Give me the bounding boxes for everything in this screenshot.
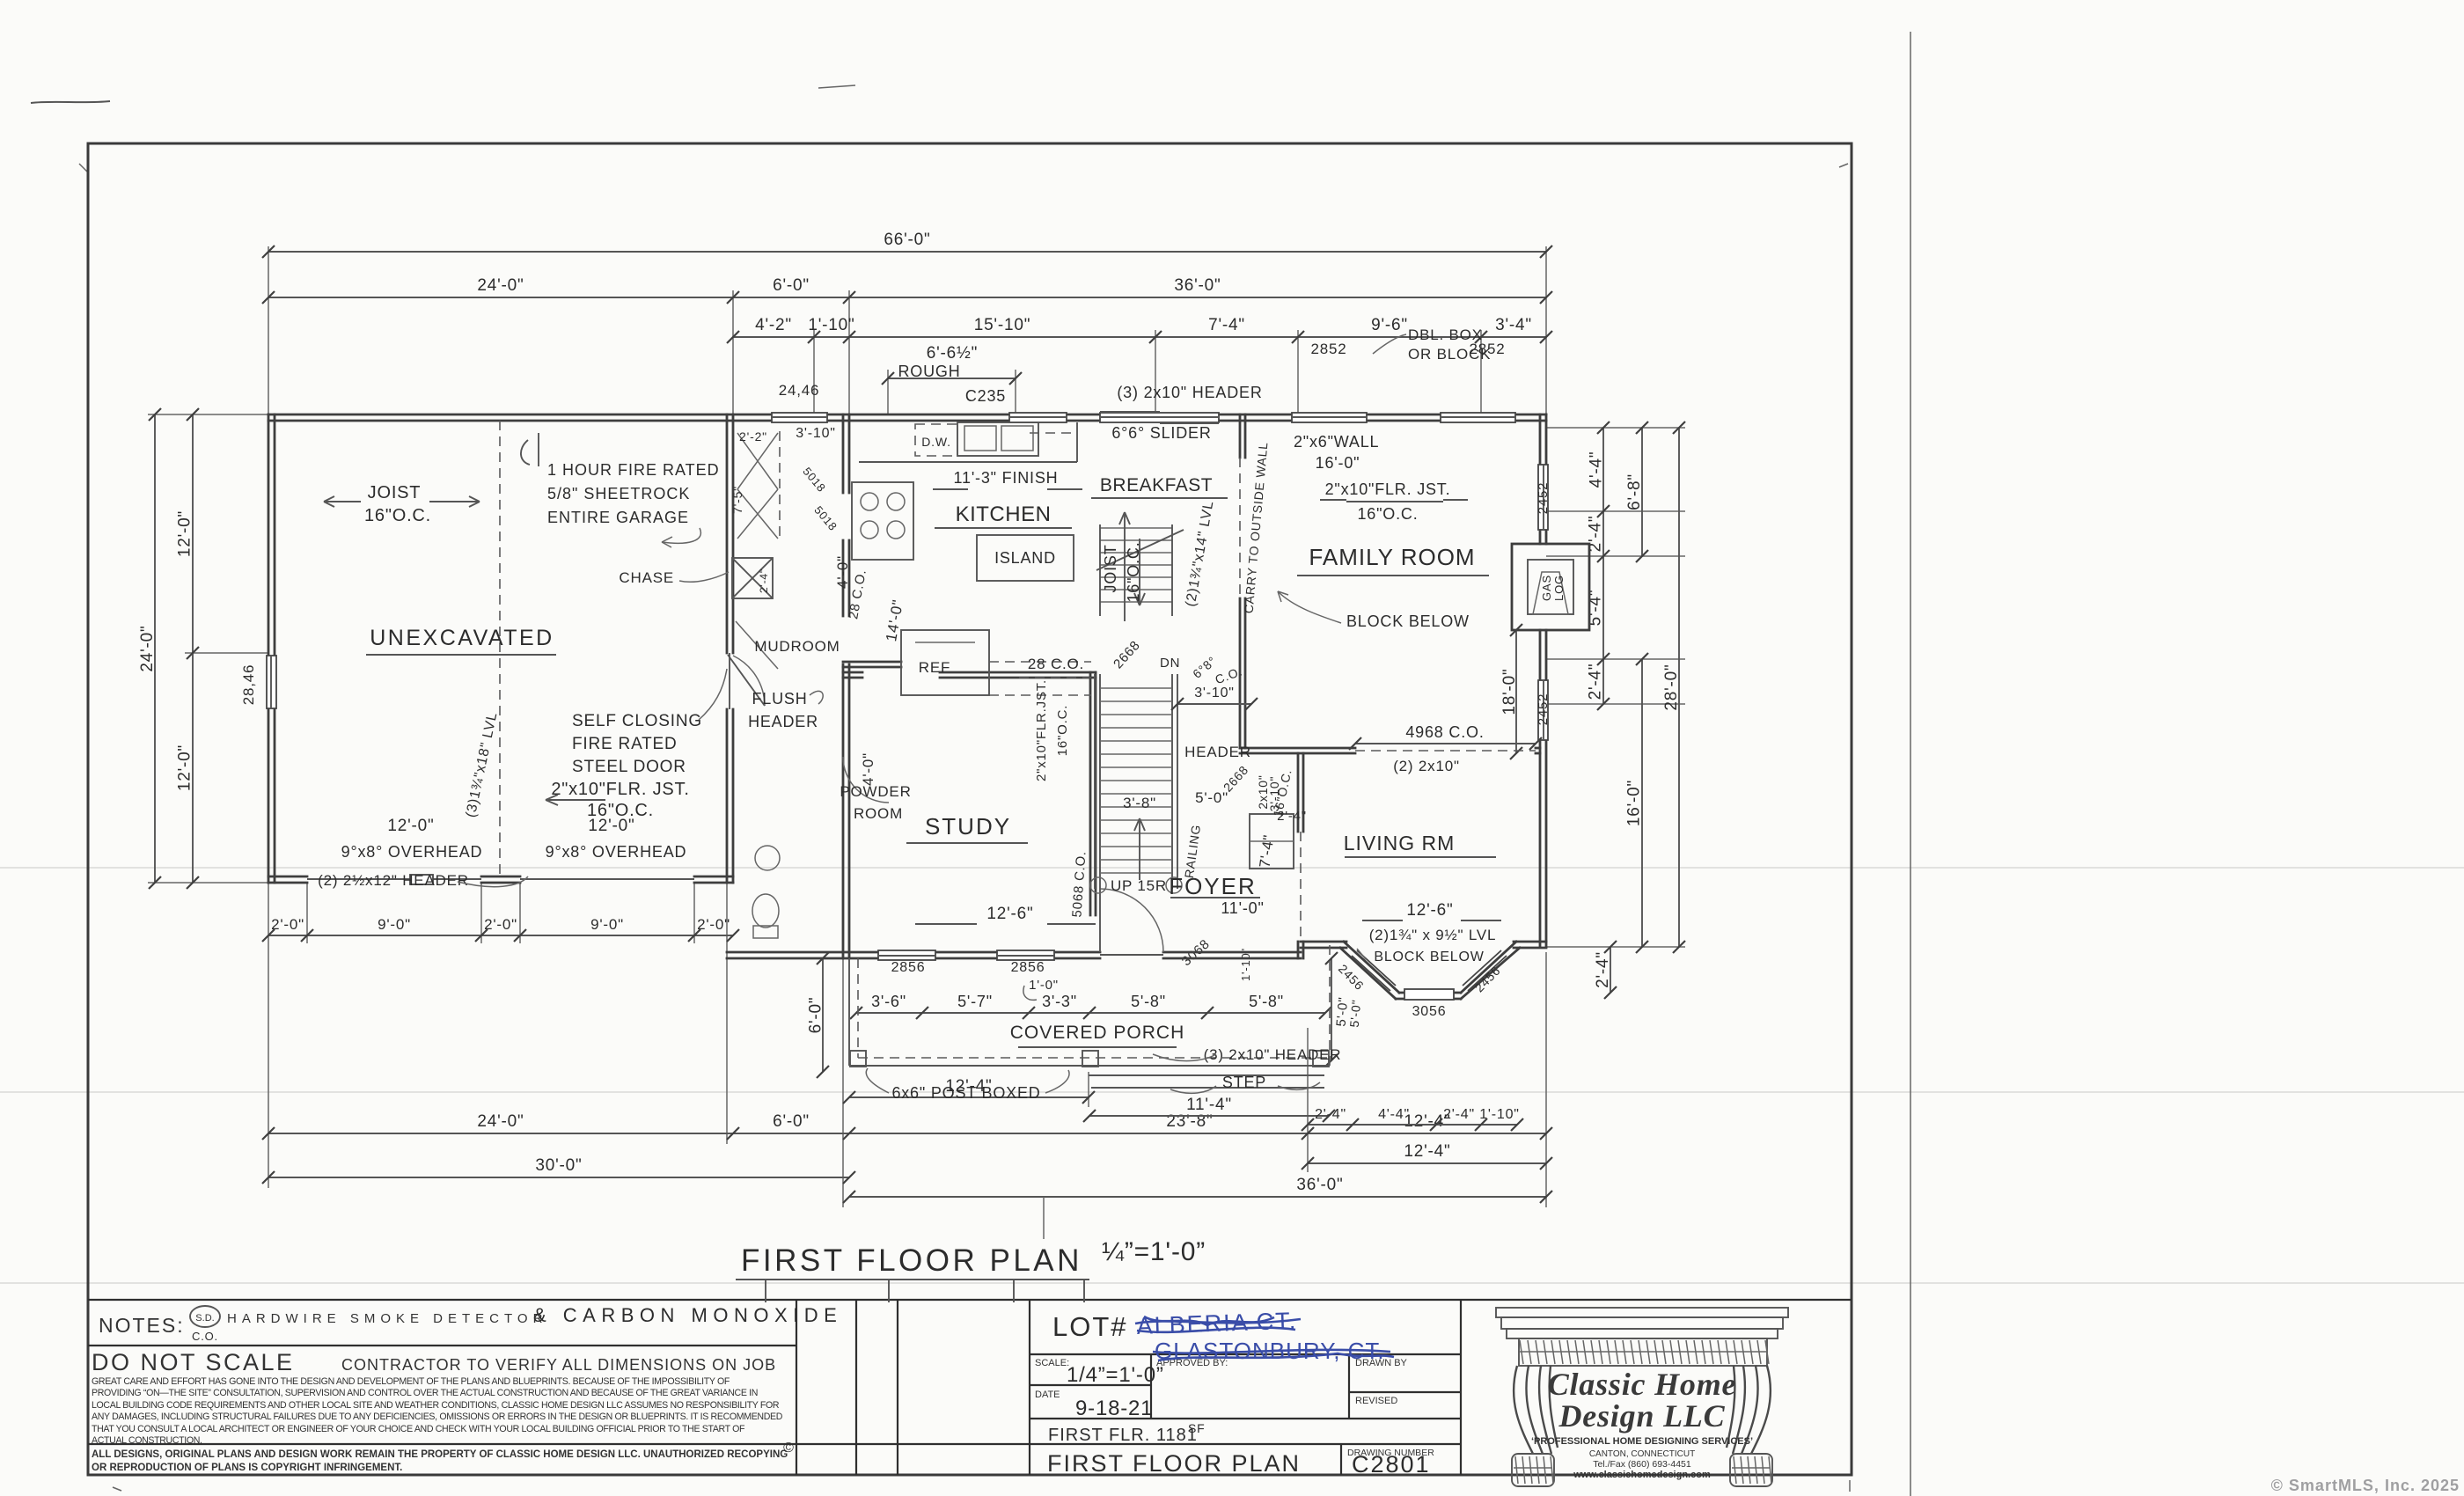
svg-text:9-18-21: 9-18-21 bbox=[1075, 1397, 1153, 1420]
svg-text:30'-0": 30'-0" bbox=[535, 1156, 582, 1175]
svg-text:3056: 3056 bbox=[1412, 1004, 1447, 1019]
svg-text:POWDER: POWDER bbox=[840, 783, 911, 800]
svg-text:REF: REF bbox=[919, 659, 950, 676]
svg-text:16"O.C.: 16"O.C. bbox=[1125, 541, 1142, 602]
svg-text:C235: C235 bbox=[965, 387, 1006, 405]
svg-text:2'-4": 2'-4" bbox=[758, 568, 770, 593]
svg-text:& CARBON MONOXIDE: & CARBON MONOXIDE bbox=[533, 1304, 842, 1326]
svg-text:(2) 2½x12" HEADER: (2) 2½x12" HEADER bbox=[318, 872, 469, 889]
svg-text:CONTRACTOR TO VERIFY ALL DIMEN: CONTRACTOR TO VERIFY ALL DIMENSIONS ON J… bbox=[341, 1356, 776, 1374]
svg-text:11'-3" FINISH: 11'-3" FINISH bbox=[954, 469, 1059, 487]
svg-text:©: © bbox=[783, 1441, 794, 1456]
svg-text:OR REPRODUCTION OF PLANS IS CO: OR REPRODUCTION OF PLANS IS COPYRIGHT IN… bbox=[92, 1463, 402, 1473]
svg-text:BLOCK BELOW: BLOCK BELOW bbox=[1346, 612, 1470, 630]
svg-text:THAT YOU CONSULT A LOCAL ARCHI: THAT YOU CONSULT A LOCAL ARCHITECT OR EN… bbox=[92, 1424, 745, 1434]
svg-text:24,46: 24,46 bbox=[779, 382, 820, 399]
svg-text:3'-10": 3'-10" bbox=[1194, 686, 1235, 700]
svg-text:JOIST: JOIST bbox=[1102, 544, 1119, 592]
svg-text:4'-2": 4'-2" bbox=[755, 316, 792, 334]
svg-text:Classic Home: Classic Home bbox=[1548, 1367, 1737, 1402]
svg-text:2"x10"FLR. JST.: 2"x10"FLR. JST. bbox=[551, 780, 689, 799]
svg-text:FAMILY ROOM: FAMILY ROOM bbox=[1309, 544, 1475, 570]
svg-text:16'-0": 16'-0" bbox=[1625, 780, 1644, 826]
svg-text:‘PROFESSIONAL HOME DESIGNING S: ‘PROFESSIONAL HOME DESIGNING SERVICES’ bbox=[1531, 1436, 1753, 1447]
svg-text:(3) 2x10" HEADER: (3) 2x10" HEADER bbox=[1117, 384, 1262, 401]
svg-text:DN: DN bbox=[1160, 656, 1180, 671]
svg-text:28'-0": 28'-0" bbox=[1662, 664, 1681, 710]
svg-text:FLUSH: FLUSH bbox=[752, 690, 807, 708]
svg-text:ISLAND: ISLAND bbox=[994, 549, 1056, 567]
svg-text:LOG: LOG bbox=[1552, 575, 1566, 601]
svg-text:D.W.: D.W. bbox=[921, 435, 951, 449]
svg-text:16"O.C.: 16"O.C. bbox=[1357, 505, 1418, 523]
svg-text:7'-4": 7'-4" bbox=[1208, 316, 1245, 334]
svg-text:C.O.: C.O. bbox=[192, 1330, 218, 1343]
svg-text:12'-0": 12'-0" bbox=[176, 744, 194, 791]
svg-text:12'-0": 12'-0" bbox=[176, 510, 194, 557]
svg-text:REVISED: REVISED bbox=[1355, 1396, 1397, 1406]
svg-text:Tel./Fax (860) 693-4451: Tel./Fax (860) 693-4451 bbox=[1593, 1459, 1691, 1470]
svg-text:BREAKFAST: BREAKFAST bbox=[1100, 475, 1213, 495]
svg-text:1'-0": 1'-0" bbox=[1029, 978, 1059, 993]
svg-text:ROUGH: ROUGH bbox=[898, 363, 961, 380]
svg-text:28 C.O.: 28 C.O. bbox=[1028, 656, 1084, 672]
svg-text:3'-4": 3'-4" bbox=[1495, 316, 1532, 334]
svg-text:(2)1¾" x 9½" LVL: (2)1¾" x 9½" LVL bbox=[1369, 927, 1497, 943]
svg-text:2'-4": 2'-4" bbox=[1315, 1107, 1346, 1122]
svg-text:2'-0": 2'-0" bbox=[697, 916, 730, 933]
svg-text:12'-0": 12'-0" bbox=[588, 817, 634, 835]
svg-text:5'-0": 5'-0" bbox=[1347, 999, 1364, 1028]
svg-text:DO NOT SCALE: DO NOT SCALE bbox=[92, 1349, 295, 1375]
svg-text:6'-0": 6'-0" bbox=[773, 276, 810, 295]
svg-text:LOT#: LOT# bbox=[1052, 1311, 1128, 1342]
svg-text:2452: 2452 bbox=[1536, 482, 1551, 515]
svg-text:16"O.C.: 16"O.C. bbox=[1055, 705, 1070, 756]
svg-text:SF: SF bbox=[1188, 1421, 1206, 1435]
svg-text:LIVING RM: LIVING RM bbox=[1344, 832, 1456, 854]
svg-text:DATE: DATE bbox=[1035, 1390, 1060, 1400]
svg-text:28,46: 28,46 bbox=[240, 664, 257, 706]
svg-text:4'-4": 4'-4" bbox=[1378, 1107, 1410, 1122]
svg-text:7'-5": 7'-5" bbox=[730, 486, 744, 514]
svg-text:DBL. BOX: DBL. BOX bbox=[1408, 326, 1483, 343]
svg-text:5'-8": 5'-8" bbox=[1131, 993, 1166, 1010]
svg-text:9'-6": 9'-6" bbox=[1371, 316, 1408, 334]
svg-text:16'-0": 16'-0" bbox=[1316, 454, 1360, 472]
svg-text:1 HOUR FIRE RATED: 1 HOUR FIRE RATED bbox=[547, 461, 720, 479]
svg-text:1/4”=1'-0”: 1/4”=1'-0” bbox=[1067, 1363, 1164, 1387]
svg-text:HARDWIRE SMOKE DETECTOR: HARDWIRE SMOKE DETECTOR bbox=[227, 1311, 547, 1326]
svg-text:FIRE RATED: FIRE RATED bbox=[572, 735, 678, 753]
svg-text:2452: 2452 bbox=[1536, 693, 1551, 726]
svg-text:STEP: STEP bbox=[1222, 1074, 1266, 1091]
svg-text:24'-0": 24'-0" bbox=[477, 276, 524, 295]
svg-text:2856: 2856 bbox=[1011, 960, 1045, 975]
svg-text:JOIST: JOIST bbox=[368, 483, 422, 502]
svg-text:2852: 2852 bbox=[1310, 341, 1346, 357]
svg-text:2"x10"FLR. JST.: 2"x10"FLR. JST. bbox=[1325, 480, 1451, 498]
svg-text:12'-4": 12'-4" bbox=[1404, 1142, 1450, 1161]
svg-text:18'-0": 18'-0" bbox=[1500, 668, 1519, 715]
svg-text:1'-10": 1'-10" bbox=[1479, 1107, 1520, 1122]
svg-text:36'-0": 36'-0" bbox=[1174, 276, 1221, 295]
svg-text:LOCAL BUILDING CODE REQUIREMEN: LOCAL BUILDING CODE REQUIREMENTS AND OTH… bbox=[92, 1400, 780, 1411]
svg-text:4968 C.O.: 4968 C.O. bbox=[1405, 723, 1484, 741]
svg-text:KITCHEN: KITCHEN bbox=[956, 502, 1052, 526]
svg-text:2'-4": 2'-4" bbox=[1587, 664, 1605, 700]
svg-text:2'-0": 2'-0" bbox=[271, 916, 304, 933]
svg-text:3'-10": 3'-10" bbox=[796, 426, 836, 441]
svg-text:2x10": 2x10" bbox=[1256, 774, 1270, 809]
svg-text:66'-0": 66'-0" bbox=[884, 231, 930, 249]
svg-text:2"x10"FLR.JST.: 2"x10"FLR.JST. bbox=[1034, 679, 1049, 781]
svg-text:12'-6": 12'-6" bbox=[1406, 901, 1453, 920]
svg-text:9°x8° OVERHEAD: 9°x8° OVERHEAD bbox=[546, 843, 687, 861]
svg-text:ENTIRE GARAGE: ENTIRE GARAGE bbox=[547, 509, 689, 526]
svg-text:2'-2": 2'-2" bbox=[739, 429, 767, 444]
svg-text:11'-4": 11'-4" bbox=[1186, 1096, 1232, 1114]
svg-text:3'-6": 3'-6" bbox=[871, 993, 906, 1010]
svg-text:9°x8° OVERHEAD: 9°x8° OVERHEAD bbox=[341, 843, 483, 861]
svg-text:GAS: GAS bbox=[1540, 575, 1553, 601]
svg-text:ALL DESIGNS, ORIGINAL PLANS AN: ALL DESIGNS, ORIGINAL PLANS AND DESIGN W… bbox=[92, 1449, 788, 1460]
svg-text:9'-0": 9'-0" bbox=[378, 916, 411, 933]
svg-text:2856: 2856 bbox=[891, 960, 926, 975]
svg-text:11'-0": 11'-0" bbox=[1221, 899, 1264, 917]
svg-text:15'-10": 15'-10" bbox=[974, 316, 1031, 334]
svg-text:(3) 2x10" HEADER: (3) 2x10" HEADER bbox=[1204, 1046, 1342, 1063]
svg-text:PROVIDING “ON—THE SITE” CONSUL: PROVIDING “ON—THE SITE” CONSULTATION, SU… bbox=[92, 1388, 758, 1398]
svg-text:SCALE:: SCALE: bbox=[1035, 1358, 1069, 1368]
svg-text:HEADER: HEADER bbox=[1184, 744, 1251, 760]
svg-text:6'-0": 6'-0" bbox=[807, 997, 825, 1034]
svg-text:FIRST FLR. 1181: FIRST FLR. 1181 bbox=[1048, 1426, 1198, 1445]
svg-text:6'-8": 6'-8" bbox=[1625, 473, 1644, 510]
svg-text:2"x6"WALL: 2"x6"WALL bbox=[1294, 433, 1379, 451]
svg-text:6'-0": 6'-0" bbox=[773, 1112, 810, 1131]
svg-text:12'-6": 12'-6" bbox=[986, 905, 1033, 923]
svg-text:FIRST FLOOR PLAN: FIRST FLOOR PLAN bbox=[1047, 1450, 1301, 1477]
svg-text:2'-4": 2'-4" bbox=[1443, 1107, 1475, 1122]
svg-text:FOYER: FOYER bbox=[1169, 873, 1257, 899]
svg-text:¼”=1'-0”: ¼”=1'-0” bbox=[1102, 1237, 1206, 1266]
svg-text:COVERED PORCH: COVERED PORCH bbox=[1010, 1023, 1185, 1043]
svg-text:SELF CLOSING: SELF CLOSING bbox=[572, 712, 702, 730]
svg-text:ANY DAMAGES, INCLUDING STRUCTU: ANY DAMAGES, INCLUDING STRUCTURAL FAILUR… bbox=[92, 1412, 783, 1422]
svg-text:2'-0": 2'-0" bbox=[484, 916, 517, 933]
svg-text:4'-4": 4'-4" bbox=[1588, 451, 1606, 488]
svg-text:www.classichomedesign.com: www.classichomedesign.com bbox=[1573, 1470, 1711, 1480]
svg-text:C2801: C2801 bbox=[1352, 1451, 1431, 1478]
svg-text:ROOM: ROOM bbox=[854, 805, 903, 822]
svg-text:24'-0": 24'-0" bbox=[477, 1112, 524, 1131]
svg-text:6°6° SLIDER: 6°6° SLIDER bbox=[1111, 424, 1211, 442]
svg-text:(2) 2x10": (2) 2x10" bbox=[1393, 758, 1460, 774]
svg-text:CHASE: CHASE bbox=[619, 569, 674, 586]
svg-text:5'-8": 5'-8" bbox=[1249, 993, 1284, 1010]
svg-text:NOTES:: NOTES: bbox=[99, 1314, 185, 1337]
svg-text:STEEL DOOR: STEEL DOOR bbox=[572, 758, 686, 776]
svg-text:24'-0": 24'-0" bbox=[138, 625, 157, 671]
svg-text:36'-0": 36'-0" bbox=[1296, 1176, 1343, 1194]
svg-text:UNEXCAVATED: UNEXCAVATED bbox=[370, 626, 554, 650]
svg-text:© SmartMLS, Inc. 2025: © SmartMLS, Inc. 2025 bbox=[2271, 1477, 2460, 1494]
svg-text:4'-0": 4'-0" bbox=[834, 555, 851, 589]
svg-text:BLOCK BELOW: BLOCK BELOW bbox=[1374, 950, 1484, 964]
svg-text:STUDY: STUDY bbox=[925, 813, 1011, 840]
svg-text:MUDROOM: MUDROOM bbox=[754, 638, 840, 655]
svg-text:9'-0": 9'-0" bbox=[590, 916, 624, 933]
svg-text:S.D.: S.D. bbox=[195, 1313, 214, 1324]
svg-text:UP 15R: UP 15R bbox=[1111, 877, 1167, 894]
svg-text:5'-0": 5'-0" bbox=[1195, 789, 1228, 806]
svg-text:4'-0": 4'-0" bbox=[860, 752, 876, 786]
svg-text:6'-6½": 6'-6½" bbox=[927, 344, 978, 363]
svg-text:CANTON, CONNECTICUT: CANTON, CONNECTICUT bbox=[1589, 1449, 1695, 1459]
svg-text:3'-8": 3'-8" bbox=[1123, 795, 1156, 811]
svg-text:1'-10": 1'-10" bbox=[808, 316, 854, 334]
svg-text:6x6" POST BOXED: 6x6" POST BOXED bbox=[891, 1084, 1040, 1102]
svg-text:GREAT CARE AND EFFORT HAS GONE: GREAT CARE AND EFFORT HAS GONE INTO THE … bbox=[92, 1376, 730, 1387]
svg-text:FIRST FLOOR PLAN: FIRST FLOOR PLAN bbox=[741, 1243, 1082, 1278]
svg-text:2'-4": 2'-4" bbox=[1594, 951, 1612, 988]
svg-text:12'-0": 12'-0" bbox=[387, 817, 434, 835]
svg-text:16"O.C.: 16"O.C. bbox=[364, 506, 431, 525]
svg-text:5'-7": 5'-7" bbox=[957, 993, 993, 1010]
svg-text:Design LLC: Design LLC bbox=[1558, 1398, 1725, 1434]
svg-text:ACTUAL CONSTRUCTION.: ACTUAL CONSTRUCTION. bbox=[92, 1435, 202, 1446]
svg-text:5/8" SHEETROCK: 5/8" SHEETROCK bbox=[547, 485, 690, 502]
svg-text:3'-3": 3'-3" bbox=[1042, 993, 1077, 1010]
svg-text:HEADER: HEADER bbox=[748, 713, 818, 730]
svg-text:OR BLOCK: OR BLOCK bbox=[1408, 346, 1491, 363]
